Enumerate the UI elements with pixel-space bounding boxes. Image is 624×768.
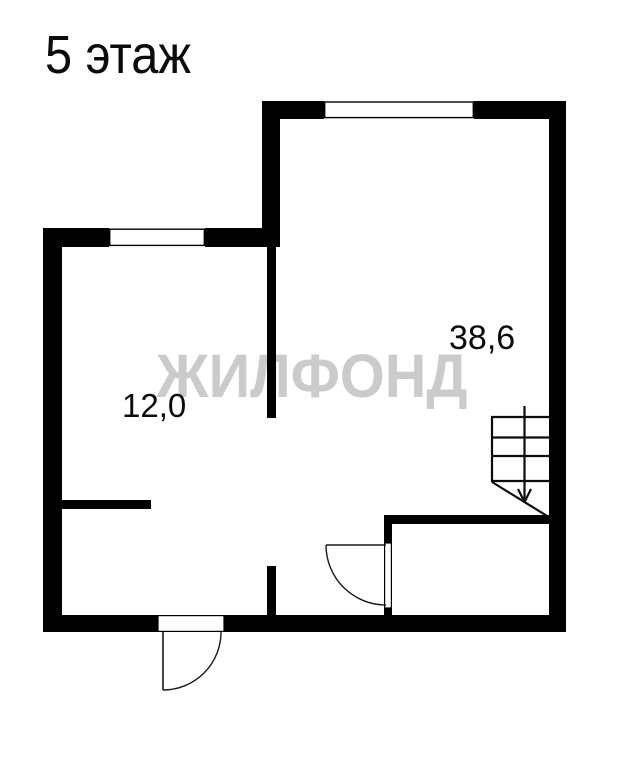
svg-text:38,6: 38,6 xyxy=(449,319,515,357)
svg-text:12,0: 12,0 xyxy=(122,387,186,424)
svg-text:ЖИЛФОНД: ЖИЛФОНД xyxy=(156,342,468,410)
svg-text:5 этаж: 5 этаж xyxy=(45,25,191,85)
